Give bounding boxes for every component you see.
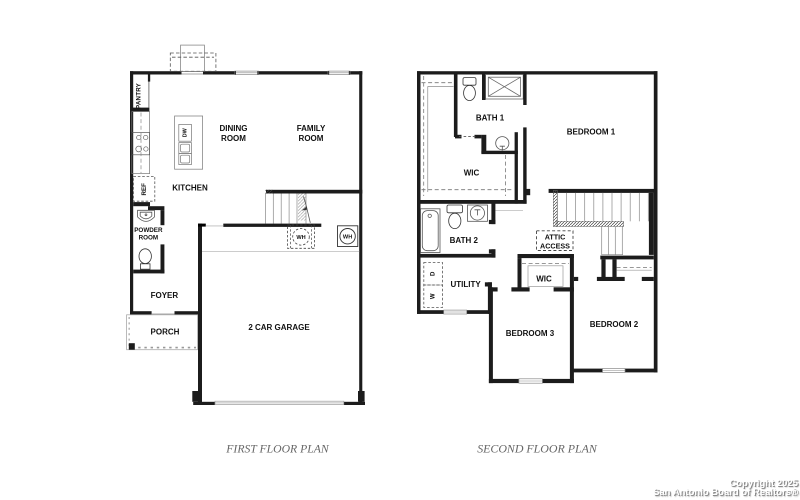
svg-text:W: W [430, 293, 436, 299]
svg-text:ROOM: ROOM [221, 134, 246, 143]
svg-text:BEDROOM 2: BEDROOM 2 [590, 320, 639, 329]
svg-text:UTILITY: UTILITY [450, 280, 481, 289]
svg-text:PANTRY: PANTRY [135, 82, 142, 109]
svg-text:FOYER: FOYER [151, 291, 179, 300]
svg-text:ATTIC: ATTIC [545, 232, 566, 241]
svg-text:ACCESS: ACCESS [540, 241, 570, 250]
svg-text:2 CAR GARAGE: 2 CAR GARAGE [248, 323, 310, 332]
svg-text:DINING: DINING [220, 124, 248, 133]
svg-text:FAMILY: FAMILY [297, 124, 326, 133]
svg-text:BATH 2: BATH 2 [450, 236, 479, 245]
svg-text:REF: REF [141, 183, 148, 196]
svg-text:KITCHEN: KITCHEN [172, 184, 208, 193]
svg-text:FIRST FLOOR PLAN: FIRST FLOOR PLAN [225, 443, 330, 456]
svg-text:ROOM: ROOM [299, 134, 324, 143]
svg-text:POWDER: POWDER [134, 227, 163, 234]
svg-text:D: D [430, 271, 436, 276]
svg-text:ROOM: ROOM [139, 235, 159, 242]
svg-text:WIC: WIC [536, 274, 552, 283]
svg-text:BEDROOM 1: BEDROOM 1 [567, 128, 616, 137]
svg-text:BEDROOM 3: BEDROOM 3 [506, 329, 555, 338]
svg-text:WH: WH [343, 234, 352, 240]
svg-text:San Antonio Board of Realtors®: San Antonio Board of Realtors® [653, 487, 798, 498]
svg-text:WH: WH [296, 235, 305, 241]
svg-text:PORCH: PORCH [151, 328, 180, 337]
svg-text:SECOND FLOOR PLAN: SECOND FLOOR PLAN [477, 442, 598, 456]
svg-text:WIC: WIC [464, 168, 480, 177]
svg-text:DW: DW [183, 127, 189, 137]
svg-text:BATH 1: BATH 1 [476, 114, 505, 123]
